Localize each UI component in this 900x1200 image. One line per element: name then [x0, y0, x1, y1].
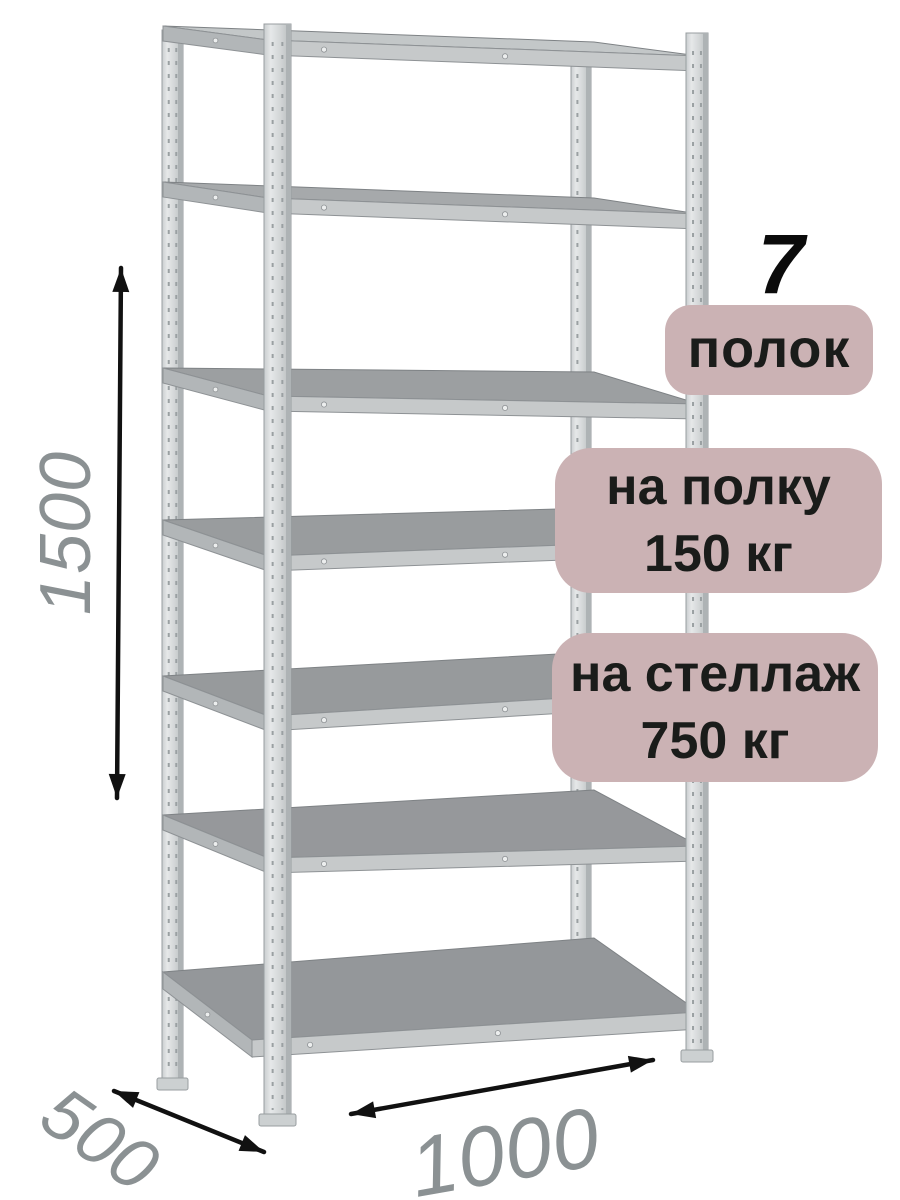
rack-load-line2: 750 кг [641, 708, 790, 775]
shelf-load-badge: на полку 150 кг [555, 448, 882, 593]
product-image: 1500 500 1000 7 полок на полку 150 кг на… [0, 0, 900, 1200]
shelf-count-label: полок [688, 315, 851, 384]
shelf-count-badge: полок [665, 305, 873, 395]
rack-load-line1: на стеллаж [570, 641, 860, 708]
shelf-load-line1: на полку [606, 454, 831, 521]
dimension-height-label: 1500 [30, 451, 102, 615]
rack-post-front [259, 24, 296, 1126]
rack-load-badge: на стеллаж 750 кг [552, 633, 878, 782]
rack-shelf [163, 938, 699, 1057]
dimension-arrow [109, 268, 130, 798]
rack-shelf [163, 368, 699, 419]
rack-shelf [163, 26, 699, 71]
rack-shelf [163, 182, 699, 229]
shelf-count-number: 7 [758, 222, 805, 306]
rack-shelf [163, 790, 699, 873]
shelf-load-line2: 150 кг [644, 521, 793, 588]
shelving-rack-illustration [0, 0, 900, 1200]
